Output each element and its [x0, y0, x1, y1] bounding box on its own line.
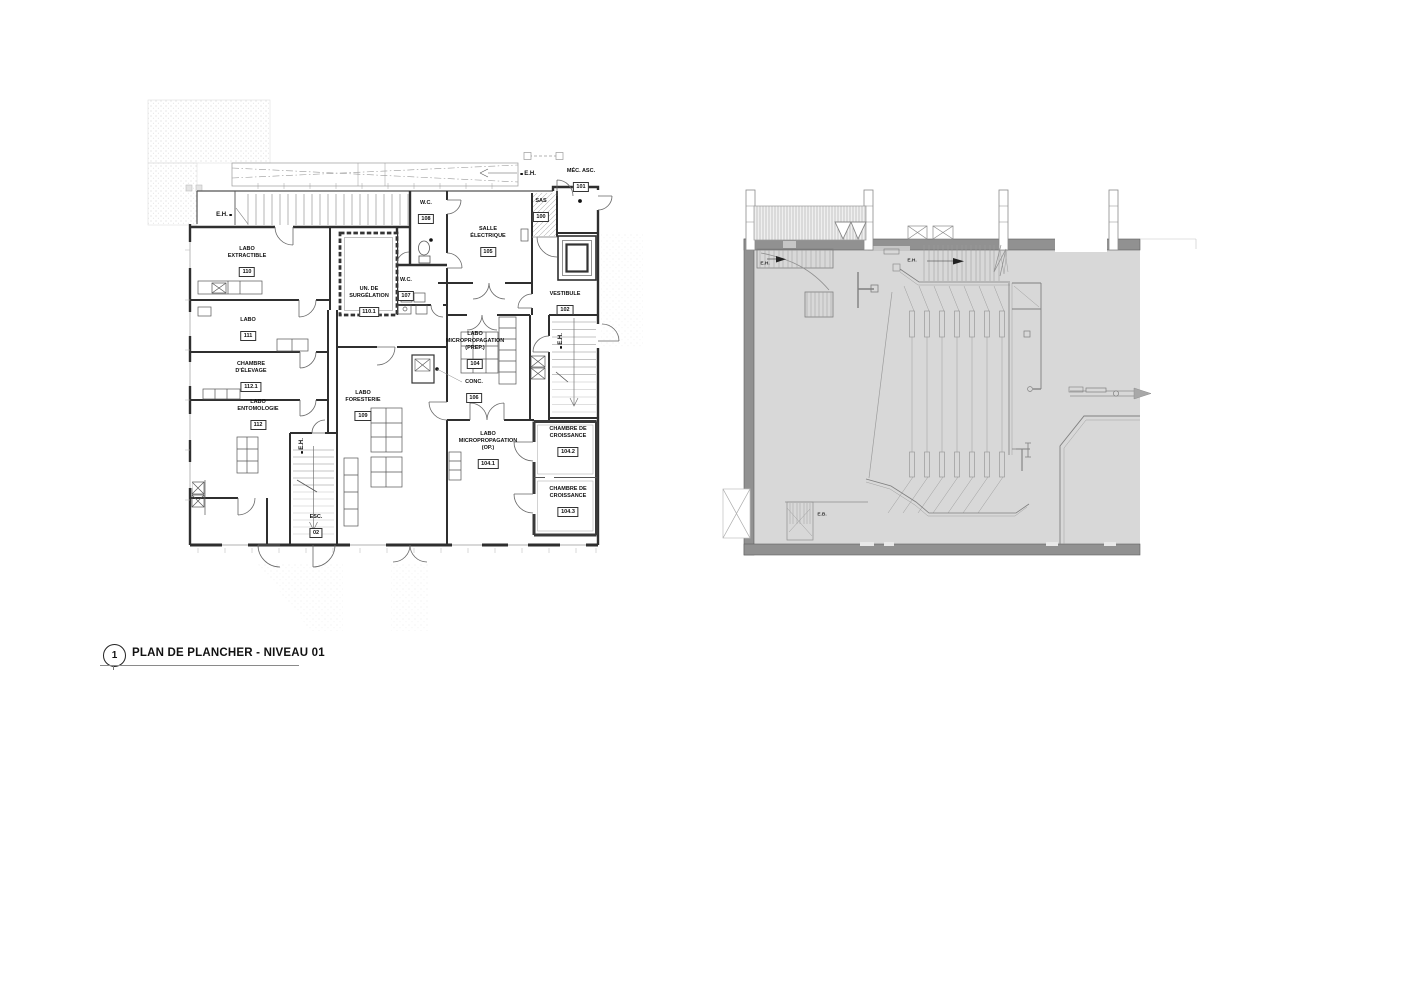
room-name: LABO MICROPROPAGATION (PREP.)	[446, 331, 504, 352]
room-name: VESTIBULE	[550, 291, 581, 298]
room-number: 109	[355, 411, 371, 421]
annotation-label: E.H.	[907, 259, 916, 264]
room-name: CHAMBRE DE CROISSANCE	[549, 486, 586, 500]
room-number: 104.2	[558, 447, 579, 457]
room-number: 112	[250, 420, 266, 430]
window-opening	[1055, 237, 1107, 252]
room-name: SALLE ÉLECTRIQUE	[470, 226, 505, 240]
elevator-shaft	[558, 236, 596, 280]
section-marker	[723, 489, 750, 538]
title-underline	[100, 665, 299, 666]
room-label-mec-asc: MÉC. ASC. 101	[567, 168, 595, 193]
plan-sheet-canvas	[0, 0, 1416, 1000]
position-marker	[520, 173, 523, 176]
annotation-label: E.B.	[817, 513, 826, 518]
room-name: CONC.	[465, 379, 483, 386]
overhead-rail	[524, 153, 563, 160]
wall-notch	[545, 475, 554, 481]
room-name: W.C.	[418, 200, 434, 207]
right-plan-drawing	[723, 190, 1196, 555]
exit-annotation-eh-esc: E.H.	[299, 438, 305, 454]
room-name: MÉC. ASC.	[567, 168, 595, 175]
room-number: 110	[239, 267, 255, 277]
position-marker	[301, 451, 304, 454]
room-name: CHAMBRE DE CROISSANCE	[549, 426, 586, 440]
exit-annotation-eh-right-plan-center: E.H.	[907, 259, 916, 264]
room-name: LABO FORESTERIE	[345, 390, 380, 404]
wall-notch	[868, 246, 910, 251]
room-name: LABO	[240, 317, 256, 324]
room-label-wc-107: W.C. 107	[398, 277, 414, 302]
room-label-croissance-104-3: CHAMBRE DE CROISSANCE 104.3	[549, 486, 586, 518]
annotation-label: E.H.	[216, 212, 228, 218]
annotation-label: E.H.	[299, 438, 305, 450]
room-label-sas: SAS 100	[533, 198, 549, 223]
drawing-title: PLAN DE PLANCHER - NIVEAU 01	[132, 647, 325, 659]
callout-tick	[113, 666, 114, 670]
room-number: 112.1	[241, 382, 261, 392]
exit-annotation-eh-nw: E.H.	[216, 212, 232, 218]
exterior-ramp	[232, 163, 518, 189]
room-label-labo-entomologie: LABO ENTOMOLOGIE 112	[237, 399, 278, 431]
position-marker	[560, 346, 563, 349]
canopy	[754, 206, 866, 240]
room-name: SAS	[533, 198, 549, 205]
room-number: 104.3	[558, 507, 579, 517]
cut-line	[1140, 239, 1196, 249]
room-number: 108	[418, 214, 434, 224]
room-label-labo-111: LABO 111	[240, 317, 256, 342]
room-label-esc: ESC. 02	[309, 514, 322, 539]
room-number: 104.1	[478, 459, 499, 469]
room-label-surgelation: UN. DE SURGÉLATION 110.1	[349, 286, 389, 318]
room-name: ESC.	[309, 514, 322, 521]
room-name: LABO EXTRACTIBLE	[228, 246, 267, 260]
room-name: CHAMBRE D'ÉLEVAGE	[235, 361, 266, 375]
annotation-label: E.H.	[524, 171, 536, 177]
wall-notch	[783, 241, 796, 248]
room-label-micropropagation-op: LABO MICROPROPAGATION (OP.) 104.1	[459, 431, 517, 470]
room-label-micropropagation-prep: LABO MICROPROPAGATION (PREP.) 104	[446, 331, 504, 370]
roof-hatch-boxes	[908, 226, 953, 239]
callout-number: 1	[112, 650, 118, 661]
room-number: 101	[573, 182, 589, 192]
room-number: 02	[309, 528, 322, 538]
room-number: 106	[466, 393, 482, 403]
room-number: 110.1	[359, 307, 379, 317]
drawing-sheet: LABO EXTRACTIBLE 110 W.C. 108 SALLE ÉLEC…	[0, 0, 1416, 1000]
room-label-salle-electrique: SALLE ÉLECTRIQUE 105	[470, 226, 505, 258]
exterior-stair	[197, 191, 553, 225]
room-number: 107	[398, 291, 414, 301]
exit-annotation-eb-right-plan: E.B.	[817, 513, 826, 518]
room-label-croissance-104-2: CHAMBRE DE CROISSANCE 104.2	[549, 426, 586, 458]
room-name: LABO MICROPROPAGATION (OP.)	[459, 431, 517, 452]
room-number: 104	[467, 359, 483, 369]
room-label-vestibule: VESTIBULE 102	[550, 291, 581, 316]
room-label-labo-foresterie: LABO FORESTERIE 109	[345, 390, 380, 422]
room-name: LABO ENTOMOLOGIE	[237, 399, 278, 413]
exit-annotation-eh-right-plan-west: E.H.	[760, 262, 769, 267]
callout-number-circle: 1	[103, 644, 126, 667]
room-label-conc: CONC. 106	[465, 379, 483, 404]
exit-annotation-eh-east-stair: E.H.	[558, 333, 564, 349]
annotation-label: E.H.	[760, 262, 769, 267]
annotation-label: E.H.	[558, 333, 564, 345]
room-label-labo-extractible: LABO EXTRACTIBLE 110	[228, 246, 267, 278]
room-number: 105	[480, 247, 496, 257]
room-number: 111	[240, 331, 256, 341]
room-number: 100	[533, 212, 549, 222]
room-number: 102	[557, 305, 573, 315]
room-label-wc-108: W.C. 108	[418, 200, 434, 225]
position-marker	[229, 214, 232, 217]
room-label-chambre-elevage: CHAMBRE D'ÉLEVAGE 112.1	[235, 361, 266, 393]
room-name: W.C.	[398, 277, 414, 284]
room-name: UN. DE SURGÉLATION	[349, 286, 389, 300]
exit-annotation-eh-ne: E.H.	[520, 171, 536, 177]
